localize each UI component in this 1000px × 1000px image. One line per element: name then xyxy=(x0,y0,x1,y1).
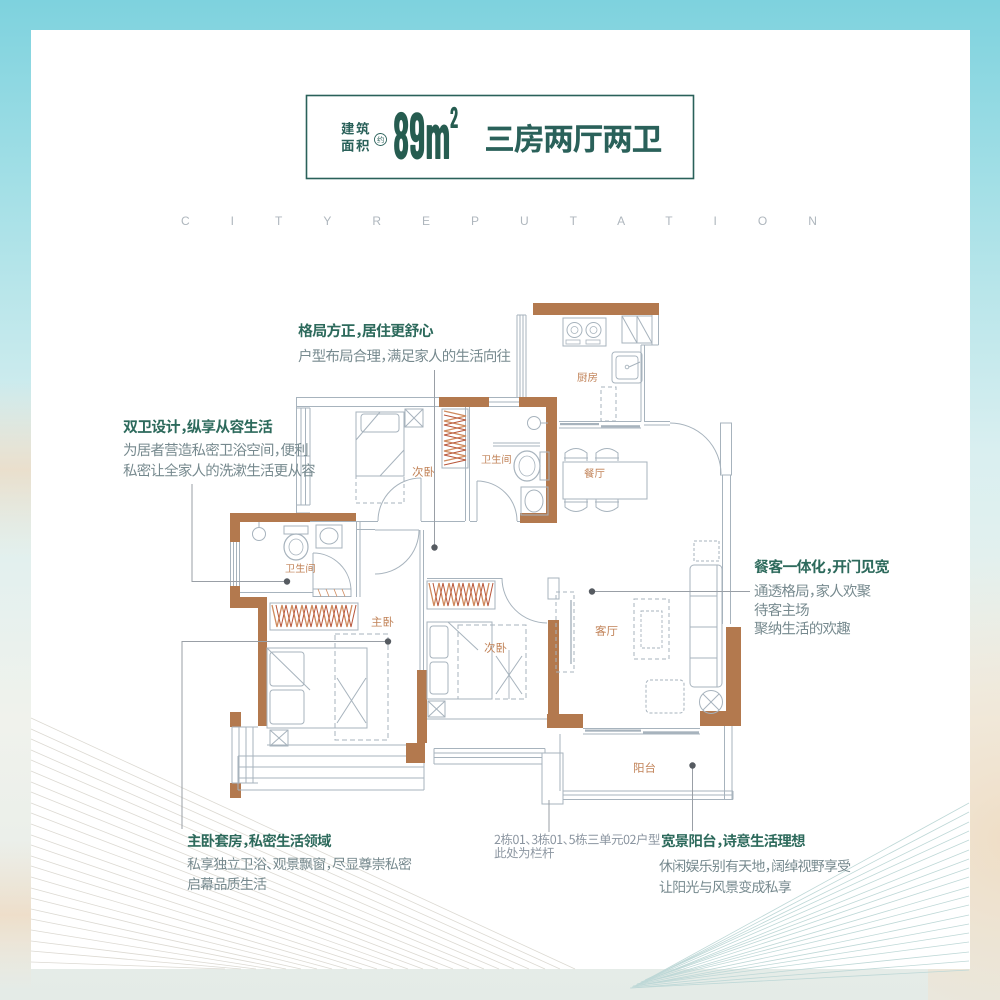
svg-text:CITYREPUTATION: CITYREPUTATION xyxy=(181,214,858,228)
